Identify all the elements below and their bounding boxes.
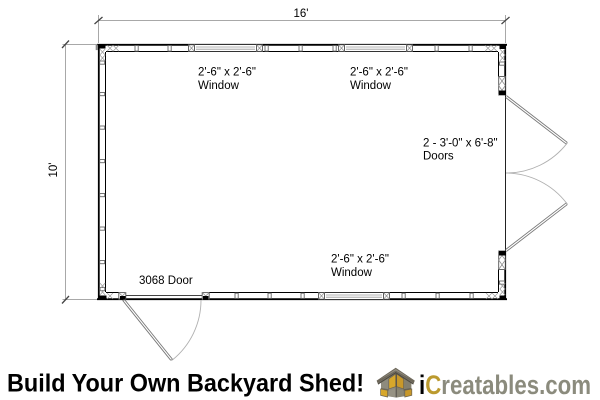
- svg-text:2'-6" x 2'-6": 2'-6" x 2'-6": [198, 67, 256, 79]
- svg-text:2'-6" x 2'-6": 2'-6" x 2'-6": [350, 67, 408, 79]
- svg-text:Window: Window: [350, 80, 392, 92]
- svg-text:2 - 3'-0" x 6'-8": 2 - 3'-0" x 6'-8": [423, 138, 498, 150]
- svg-text:Doors: Doors: [423, 151, 454, 163]
- svg-text:2'-6" x 2'-6": 2'-6" x 2'-6": [331, 254, 389, 266]
- svg-text:Window: Window: [198, 80, 240, 92]
- svg-text:10': 10': [48, 163, 60, 178]
- svg-text:Build Your Own Backyard Shed!: Build Your Own Backyard Shed!: [7, 370, 364, 398]
- svg-text:16': 16': [294, 8, 309, 20]
- svg-text:Window: Window: [331, 267, 373, 279]
- svg-text:3068 Door: 3068 Door: [139, 275, 193, 287]
- svg-text:iCreatables.com: iCreatables.com: [419, 371, 591, 400]
